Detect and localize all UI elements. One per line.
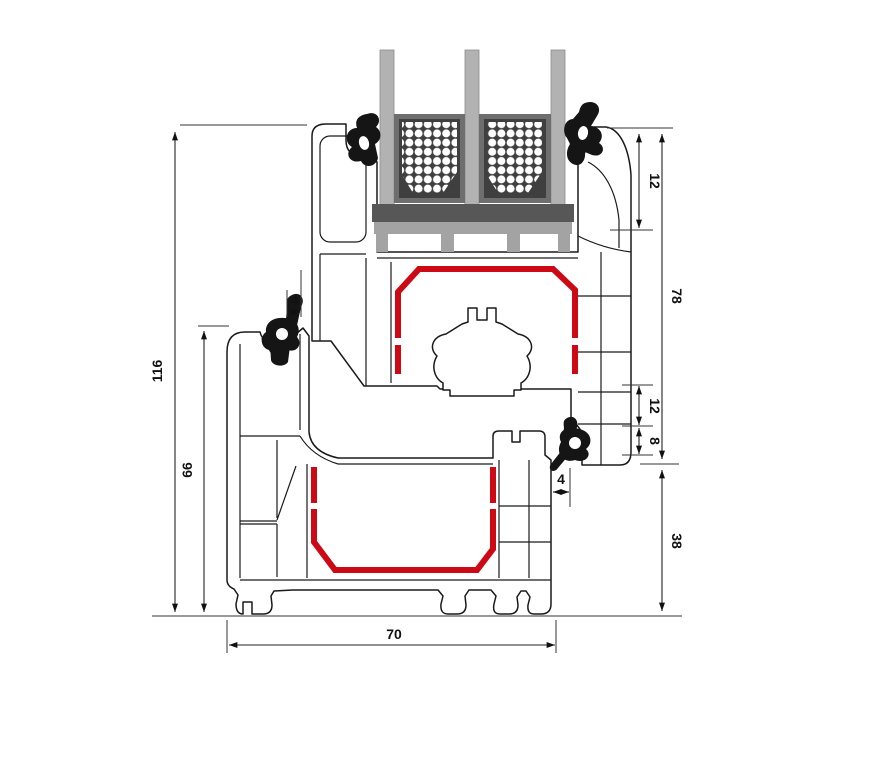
dimension-frame-depth: 70 [229,626,555,645]
dimension-label-8: 8 [647,437,663,445]
dimension-gap-bottom: 4 [553,471,569,492]
desiccant-dots-2 [487,122,542,193]
dimension-glazing-depth: 12 [639,134,663,228]
glazing-unit [372,50,574,252]
reinforcement-notch [395,338,401,345]
desiccant-dots-1 [402,122,457,193]
dimension-frame-inner-height: 66 [179,331,204,612]
dimension-label-12-glazing: 12 [647,173,663,189]
dimension-label-66: 66 [179,462,195,478]
dimension-label-12-mid: 12 [647,398,663,414]
dimension-sash-height: 78 [662,134,685,459]
reinforcement-notch [311,503,318,509]
dimension-label-4-bottom: 4 [557,471,565,487]
glazing-block [372,204,574,222]
glass-pane-inner [551,50,565,222]
window-profile-cross-section: 116 66 4 12 78 12 8 38 [0,0,877,766]
dimension-hardware-12: 12 [639,386,663,425]
glazing-gasket-outer [347,113,381,166]
glass-pane-outer [380,50,394,222]
dimension-frame-base: 38 [662,470,685,611]
reinforcement-notch [572,338,578,345]
dimension-label-70: 70 [386,626,402,642]
dimension-hardware-8: 8 [639,428,663,454]
spacer-bar-2 [479,114,551,203]
reinforcement-notch [490,503,497,509]
dimension-label-4-top: 4 [290,292,298,308]
glass-pane-middle [465,50,479,222]
dimension-overall-height: 116 [149,132,175,612]
spacer-bar-1 [394,114,465,203]
technical-drawing-canvas: 116 66 4 12 78 12 8 38 [0,0,877,766]
dimension-label-78: 78 [669,288,685,304]
dimension-label-38: 38 [669,533,685,549]
dimension-label-116: 116 [149,359,165,382]
glazing-bridge [374,222,572,252]
